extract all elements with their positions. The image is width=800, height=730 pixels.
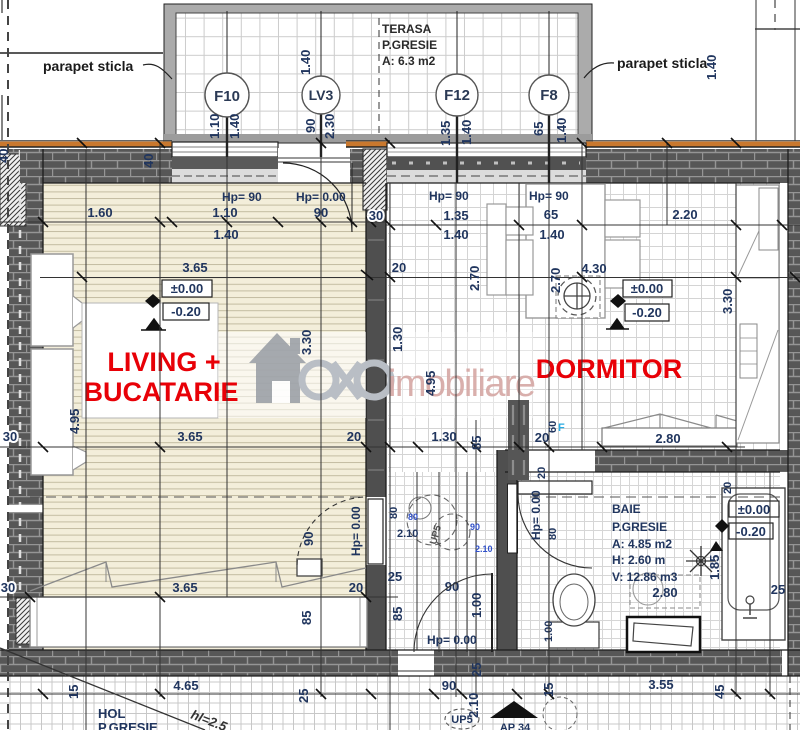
svg-text:1.40: 1.40 (298, 50, 313, 75)
svg-text:20: 20 (347, 429, 361, 444)
svg-text:±0.00: ±0.00 (738, 502, 770, 517)
svg-text:90: 90 (442, 678, 456, 693)
svg-text:20: 20 (349, 580, 363, 595)
svg-text:1.10: 1.10 (207, 114, 222, 139)
svg-text:2.10: 2.10 (397, 528, 418, 540)
svg-text:20: 20 (536, 467, 548, 479)
svg-text:85: 85 (299, 611, 314, 625)
svg-text:2.80: 2.80 (655, 431, 680, 446)
svg-text:parapet sticla: parapet sticla (43, 58, 133, 74)
svg-text:90: 90 (445, 579, 459, 594)
svg-text:H: 2.60 m: H: 2.60 m (612, 553, 665, 567)
svg-text:40: 40 (141, 154, 156, 168)
svg-text:4.65: 4.65 (173, 678, 198, 693)
svg-text:1.30: 1.30 (390, 327, 405, 352)
svg-text:A: 4.85 m2: A: 4.85 m2 (612, 537, 672, 551)
svg-text:DORMITOR: DORMITOR (536, 354, 683, 384)
svg-text:Hp= 90: Hp= 90 (222, 190, 262, 204)
svg-text:V: 12.86 m3: V: 12.86 m3 (612, 570, 678, 584)
svg-text:4.95: 4.95 (423, 371, 438, 396)
svg-text:15: 15 (541, 683, 556, 697)
svg-text:20: 20 (392, 260, 406, 275)
svg-text:25: 25 (771, 582, 785, 597)
svg-text:HOL: HOL (98, 706, 126, 721)
svg-text:F: F (558, 422, 565, 434)
svg-text:65: 65 (531, 122, 546, 136)
svg-text:30: 30 (1, 580, 15, 595)
svg-text:Hp= 0.00: Hp= 0.00 (427, 633, 477, 647)
svg-text:1.40: 1.40 (459, 120, 474, 145)
svg-text:65: 65 (544, 207, 558, 222)
svg-text:40: 40 (0, 149, 11, 163)
svg-text:TERASA: TERASA (382, 22, 432, 36)
svg-text:2.70: 2.70 (548, 268, 563, 293)
svg-text:P.GRESIE: P.GRESIE (382, 38, 437, 52)
svg-text:±0.00: ±0.00 (171, 281, 203, 296)
svg-text:LV3: LV3 (309, 87, 334, 103)
svg-text:-0.20: -0.20 (736, 524, 766, 539)
svg-text:parapet sticla: parapet sticla (617, 55, 707, 71)
svg-text:15: 15 (66, 685, 81, 699)
svg-text:1.40: 1.40 (539, 227, 564, 242)
svg-text:1.30: 1.30 (431, 429, 456, 444)
svg-text:P.GRESIE: P.GRESIE (612, 520, 667, 534)
svg-text:25: 25 (469, 663, 484, 677)
svg-text:Hp= 90: Hp= 90 (529, 189, 569, 203)
svg-text:1.40: 1.40 (704, 55, 719, 80)
svg-text:-0.20: -0.20 (632, 305, 662, 320)
svg-text:BAIE: BAIE (612, 502, 641, 516)
svg-text:AP 34: AP 34 (500, 722, 531, 730)
svg-text:F8: F8 (540, 87, 558, 104)
svg-text:1.40: 1.40 (443, 227, 468, 242)
svg-text:80: 80 (408, 512, 418, 522)
svg-text:3.65: 3.65 (177, 429, 202, 444)
svg-text:25: 25 (296, 689, 311, 703)
svg-text:±0.00: ±0.00 (631, 281, 663, 296)
svg-text:Hp= 0.00: Hp= 0.00 (349, 506, 363, 556)
svg-text:3.30: 3.30 (720, 289, 735, 314)
svg-text:1.00: 1.00 (469, 593, 484, 618)
svg-text:Hp= 90: Hp= 90 (429, 189, 469, 203)
svg-text:90: 90 (303, 119, 318, 133)
svg-text:1.85: 1.85 (707, 555, 722, 580)
svg-text:1.10: 1.10 (212, 205, 237, 220)
svg-text:85: 85 (469, 436, 484, 450)
svg-text:3.65: 3.65 (182, 260, 207, 275)
svg-text:85: 85 (390, 607, 405, 621)
svg-text:-0.20: -0.20 (171, 304, 201, 319)
svg-text:90: 90 (470, 522, 480, 532)
svg-text:BUCATARIE: BUCATARIE (84, 377, 239, 407)
svg-text:3.65: 3.65 (172, 580, 197, 595)
svg-text:2.10: 2.10 (475, 544, 493, 554)
svg-text:4.30: 4.30 (581, 261, 606, 276)
svg-text:80: 80 (388, 507, 400, 519)
svg-text:F12: F12 (444, 87, 470, 104)
svg-text:1.35: 1.35 (438, 121, 453, 146)
svg-text:30: 30 (3, 429, 17, 444)
svg-text:3.30: 3.30 (299, 330, 314, 355)
svg-text:F10: F10 (214, 88, 240, 105)
svg-text:2.10: 2.10 (466, 693, 481, 718)
svg-text:LIVING +: LIVING + (107, 347, 220, 377)
svg-text:20: 20 (722, 482, 734, 494)
svg-text:2.30: 2.30 (322, 114, 337, 139)
svg-text:45: 45 (712, 685, 727, 699)
svg-text:1.40: 1.40 (554, 118, 569, 143)
svg-text:25: 25 (388, 569, 402, 584)
svg-text:90: 90 (301, 532, 316, 546)
svg-text:4.95: 4.95 (67, 409, 82, 434)
svg-text:1.40: 1.40 (213, 227, 238, 242)
svg-text:3.55: 3.55 (648, 677, 673, 692)
svg-text:P.GRESIE: P.GRESIE (98, 720, 158, 730)
svg-text:90: 90 (314, 205, 328, 220)
svg-text:imobiliare: imobiliare (388, 363, 536, 405)
svg-text:2.70: 2.70 (467, 266, 482, 291)
svg-text:Hp= 0.00: Hp= 0.00 (296, 190, 346, 204)
svg-text:1.40: 1.40 (227, 114, 242, 139)
svg-text:2.80: 2.80 (652, 585, 677, 600)
svg-text:1.35: 1.35 (443, 208, 468, 223)
svg-text:1.60: 1.60 (87, 205, 112, 220)
svg-text:30: 30 (369, 208, 383, 223)
svg-text:2.20: 2.20 (672, 207, 697, 222)
svg-text:A: 6.3 m2: A: 6.3 m2 (382, 54, 436, 68)
